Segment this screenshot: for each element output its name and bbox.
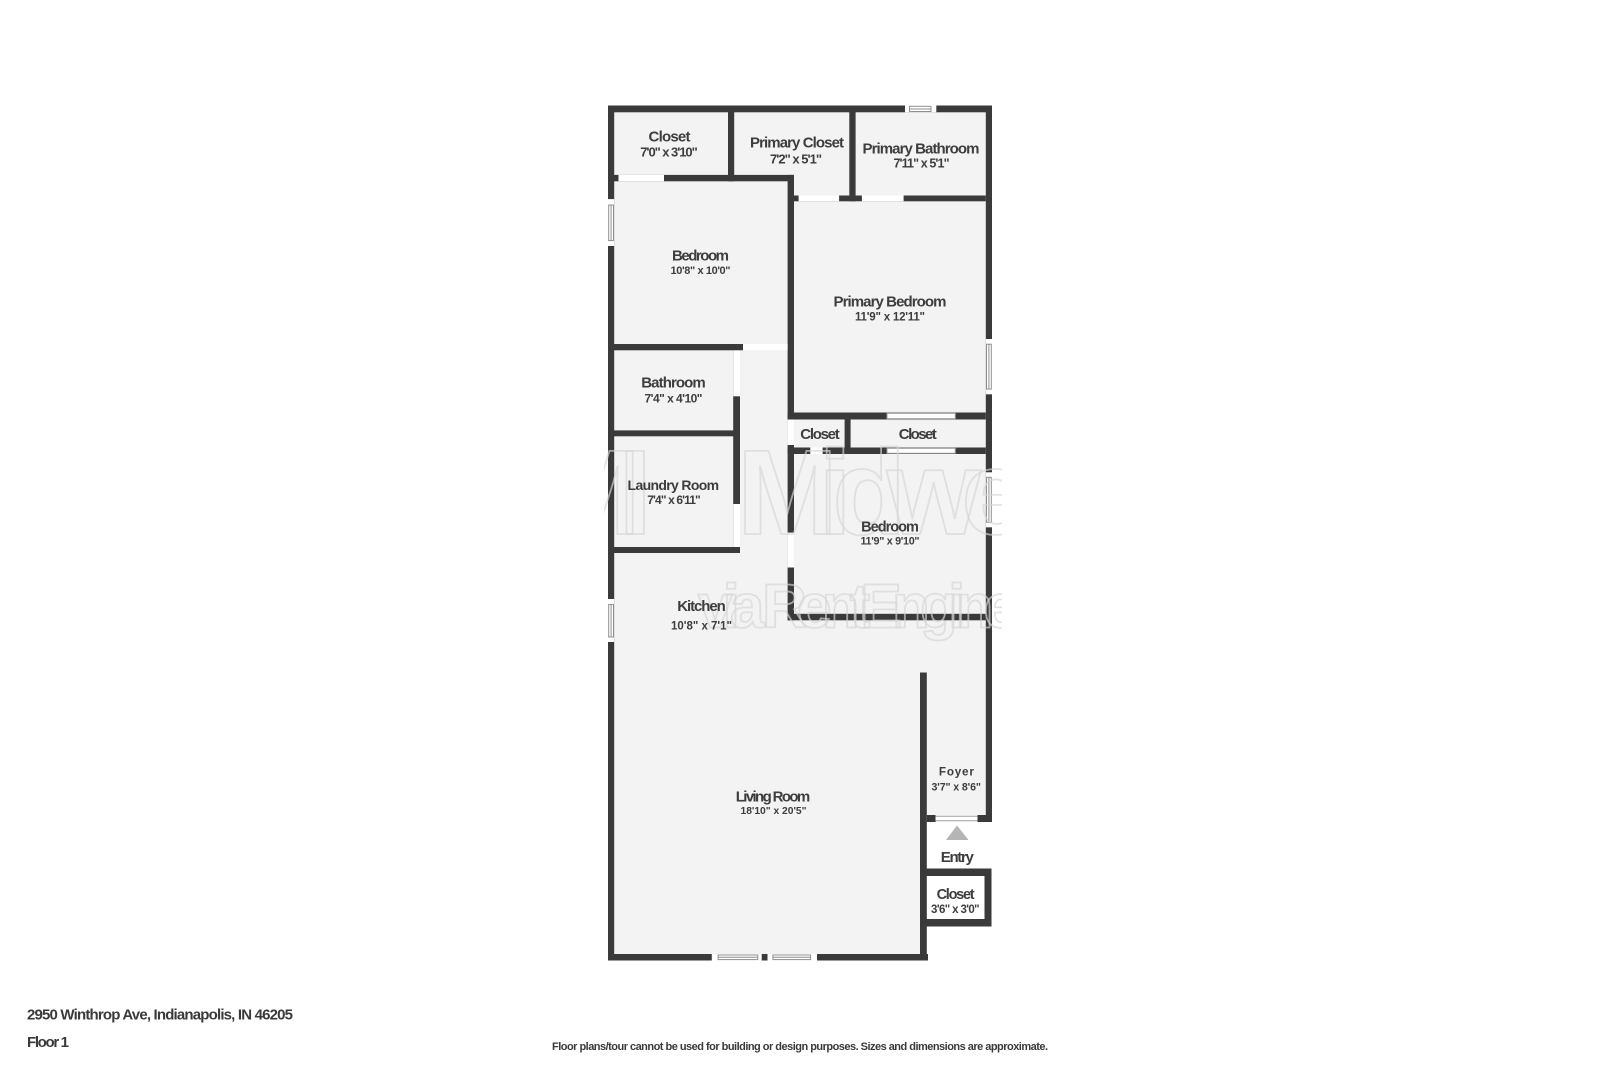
svg-text:10'8" x 10'0": 10'8" x 10'0" — [671, 265, 731, 277]
svg-text:Primary Bathroom: Primary Bathroom — [863, 141, 980, 158]
svg-text:3'6" x 3'0": 3'6" x 3'0" — [931, 904, 980, 916]
svg-text:Laundry Room: Laundry Room — [628, 477, 720, 493]
svg-text:Closet: Closet — [800, 426, 840, 443]
svg-text:Living Room: Living Room — [736, 789, 811, 806]
svg-text:Bedroom: Bedroom — [672, 248, 729, 265]
svg-text:Closet: Closet — [937, 887, 975, 903]
svg-text:7'4" x 4'10": 7'4" x 4'10" — [645, 391, 703, 405]
svg-text:Foyer: Foyer — [939, 766, 974, 779]
svg-text:2950 Winthrop Ave, Indianapoli: 2950 Winthrop Ave, Indianapolis, IN 4620… — [27, 1007, 293, 1024]
svg-text:7'2" x 5'1": 7'2" x 5'1" — [770, 151, 822, 166]
svg-text:7'11" x 5'1": 7'11" x 5'1" — [894, 156, 950, 170]
svg-text:Floor plans/tour cannot be use: Floor plans/tour cannot be used for buil… — [552, 1041, 1048, 1053]
svg-text:Bedroom: Bedroom — [861, 519, 919, 535]
svg-text:Closet: Closet — [899, 426, 937, 443]
svg-text:3'7" x 8'6": 3'7" x 8'6" — [932, 781, 981, 793]
svg-text:7'0" x 3'10": 7'0" x 3'10" — [640, 145, 698, 160]
svg-text:18'10" x 20'5": 18'10" x 20'5" — [741, 806, 807, 817]
svg-text:7'4" x 6'11": 7'4" x 6'11" — [647, 493, 701, 507]
svg-text:Primary Bedroom: Primary Bedroom — [834, 294, 947, 311]
svg-text:11'9" x 9'10": 11'9" x 9'10" — [860, 536, 919, 548]
svg-text:11'9" x 12'11": 11'9" x 12'11" — [855, 312, 925, 324]
svg-text:via RentEngine: via RentEngine — [698, 573, 1018, 642]
svg-text:Entry: Entry — [941, 849, 975, 866]
svg-text:Primary Closet: Primary Closet — [750, 135, 844, 152]
svg-text:Kitchen: Kitchen — [677, 598, 726, 615]
svg-text:Closet: Closet — [649, 129, 691, 146]
svg-text:Floor 1: Floor 1 — [27, 1034, 69, 1051]
svg-text:10'8" x 7'1": 10'8" x 7'1" — [671, 621, 732, 633]
svg-text:Bathroom: Bathroom — [641, 375, 706, 392]
